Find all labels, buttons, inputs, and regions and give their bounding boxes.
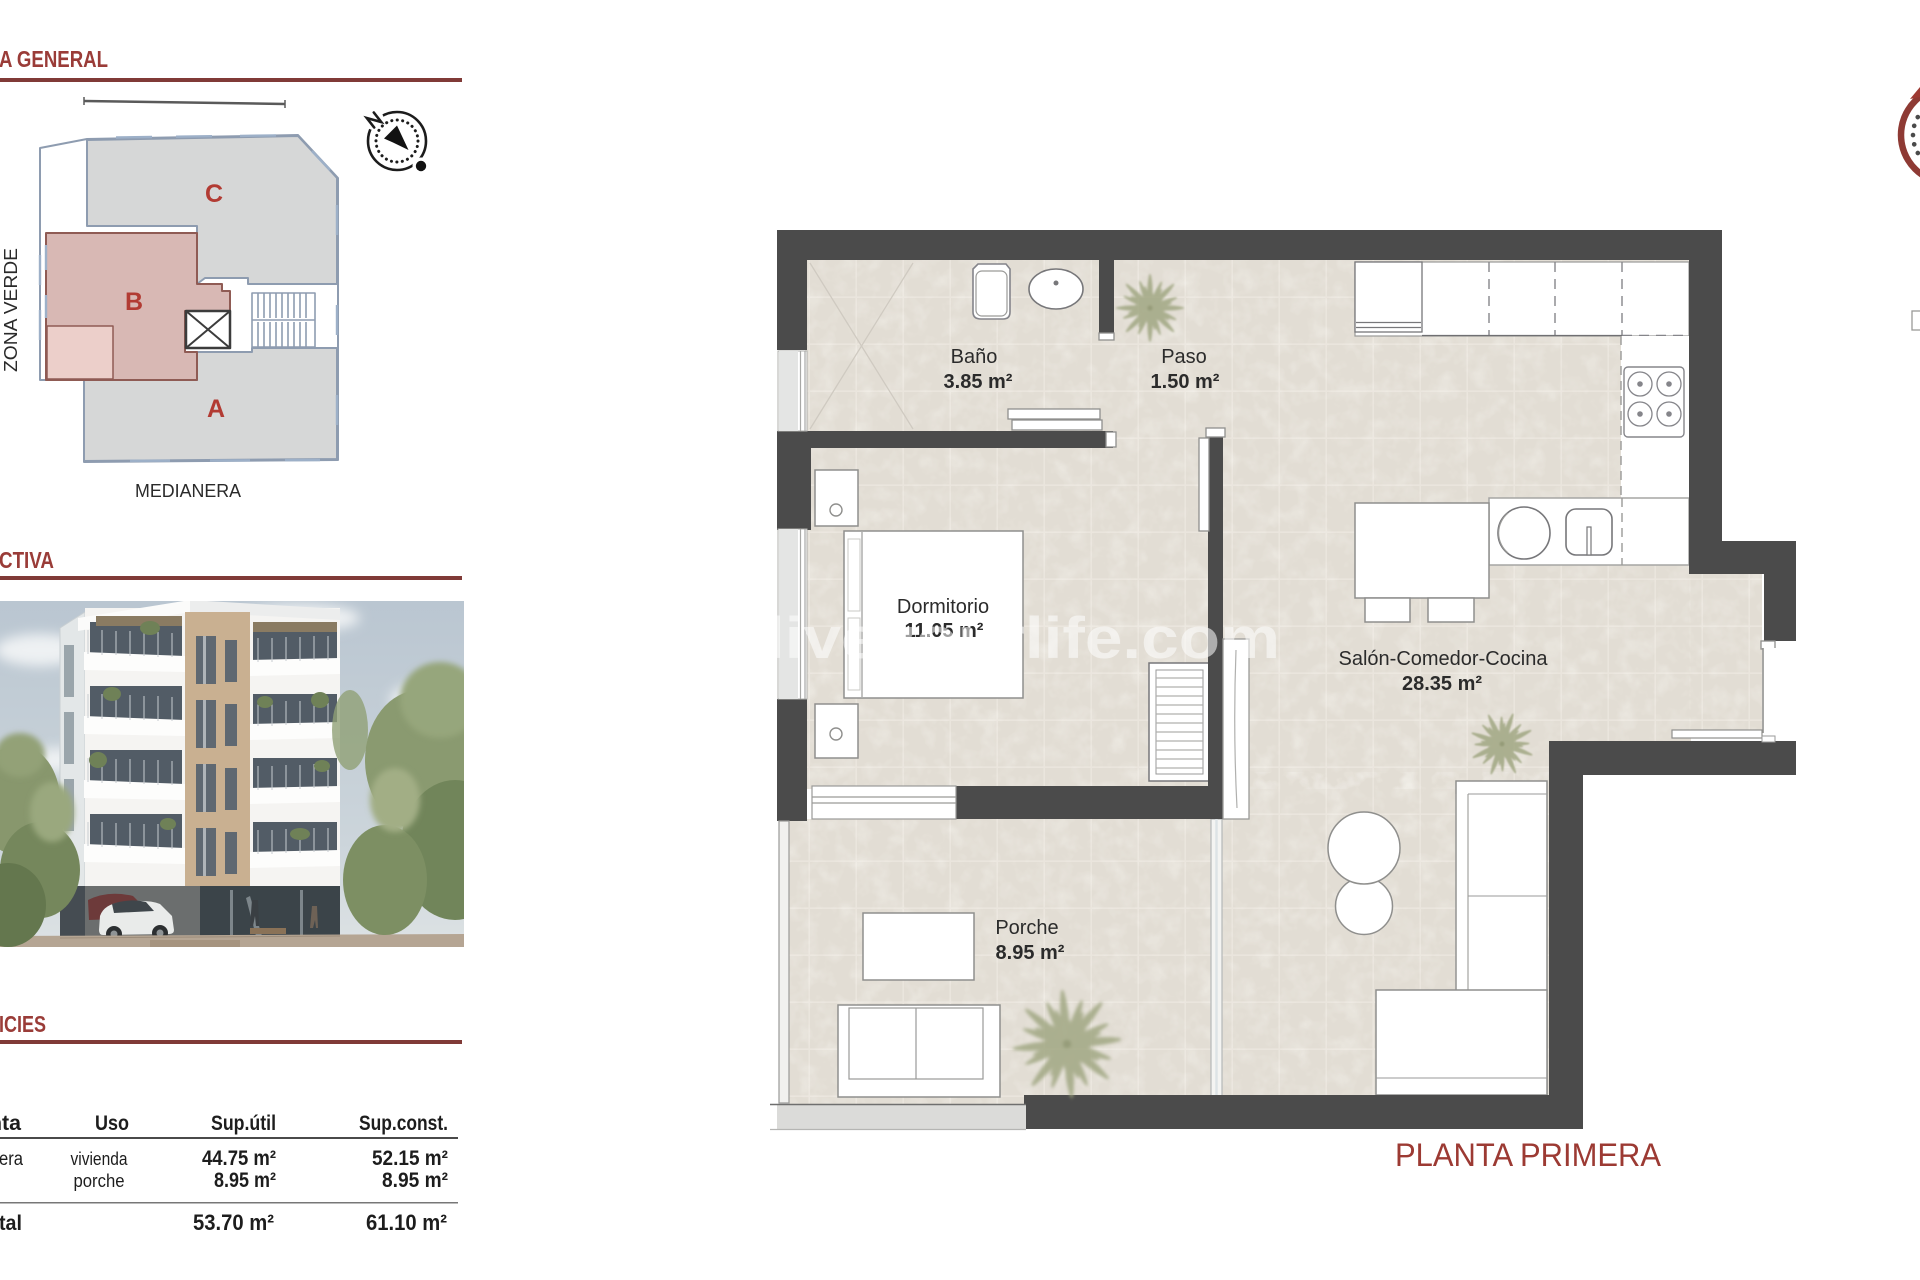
svg-text:C: C [205, 180, 223, 208]
svg-text:CTIVA: CTIVA [0, 547, 54, 573]
svg-text:Salón-Comedor-Cocina: Salón-Comedor-Cocina [1339, 648, 1549, 670]
svg-text:3.85 m²: 3.85 m² [944, 371, 1013, 393]
svg-text:61.10 m²: 61.10 m² [366, 1210, 447, 1235]
svg-text:B: B [125, 288, 143, 316]
svg-text:era: era [0, 1149, 23, 1170]
svg-text:vivienda: vivienda [71, 1149, 129, 1169]
svg-text:Sup.útil: Sup.útil [211, 1112, 276, 1135]
svg-text:porche: porche [74, 1171, 125, 1191]
svg-text:ZONA VERDE: ZONA VERDE [1, 248, 21, 372]
svg-text:1.50 m²: 1.50 m² [1151, 371, 1220, 393]
svg-text:A: A [207, 395, 225, 423]
svg-text:MEDIANERA: MEDIANERA [135, 481, 241, 501]
svg-text:53.70 m²: 53.70 m² [193, 1210, 274, 1235]
svg-text:52.15 m²: 52.15 m² [372, 1147, 448, 1170]
svg-text:ICIES: ICIES [0, 1011, 46, 1037]
svg-text:Baño: Baño [951, 346, 998, 368]
svg-text:nta: nta [0, 1112, 21, 1135]
svg-text:8.95 m²: 8.95 m² [382, 1169, 448, 1192]
svg-text:PLANTA PRIMERA: PLANTA PRIMERA [1395, 1137, 1662, 1173]
svg-text:28.35 m²: 28.35 m² [1402, 673, 1482, 695]
svg-text:liveyourlife.com: liveyourlife.com [766, 606, 1280, 671]
svg-text:tal: tal [0, 1212, 22, 1235]
svg-text:Uso: Uso [95, 1112, 129, 1135]
svg-text:8.95 m²: 8.95 m² [214, 1169, 276, 1192]
svg-text:Sup.const.: Sup.const. [359, 1112, 448, 1135]
svg-text:Paso: Paso [1161, 346, 1207, 368]
svg-text:A GENERAL: A GENERAL [0, 46, 108, 72]
svg-text:8.95 m²: 8.95 m² [996, 942, 1065, 964]
svg-text:Porche: Porche [995, 917, 1058, 939]
svg-text:44.75 m²: 44.75 m² [202, 1147, 276, 1170]
